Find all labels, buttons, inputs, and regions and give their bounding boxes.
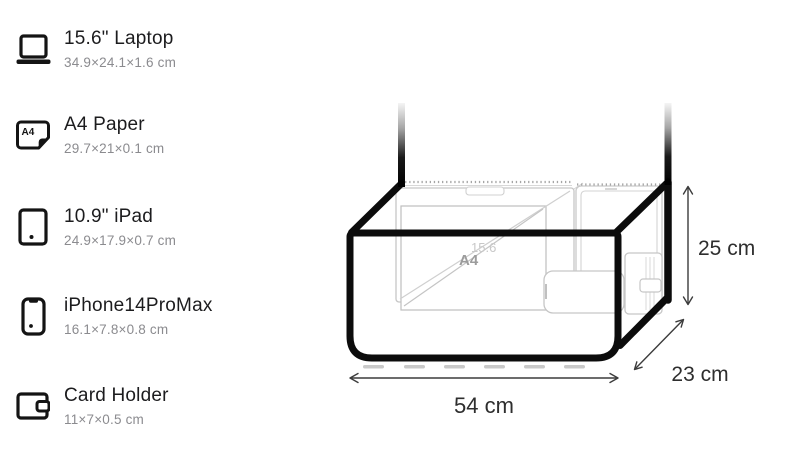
laptop-interior-label: 15.6 [471,240,496,255]
depth-dimension-label: 23 cm [671,363,728,386]
width-dimension-label: 54 cm [454,393,514,418]
iphone-outline [544,271,624,313]
strap-right [665,103,672,185]
bag-dimension-diagram: A4 15.6 [0,0,800,455]
bag-feet [363,365,585,369]
product-capacity-diagram: 15.6" Laptop 34.9×24.1×1.6 cm A4 A4 Pape… [0,0,800,455]
strap-left [398,103,405,187]
height-dimension-arrow [684,187,693,305]
zipper-dotted-line [401,182,664,186]
height-dimension-label: 25 cm [698,237,755,260]
width-dimension-arrow [350,374,618,383]
